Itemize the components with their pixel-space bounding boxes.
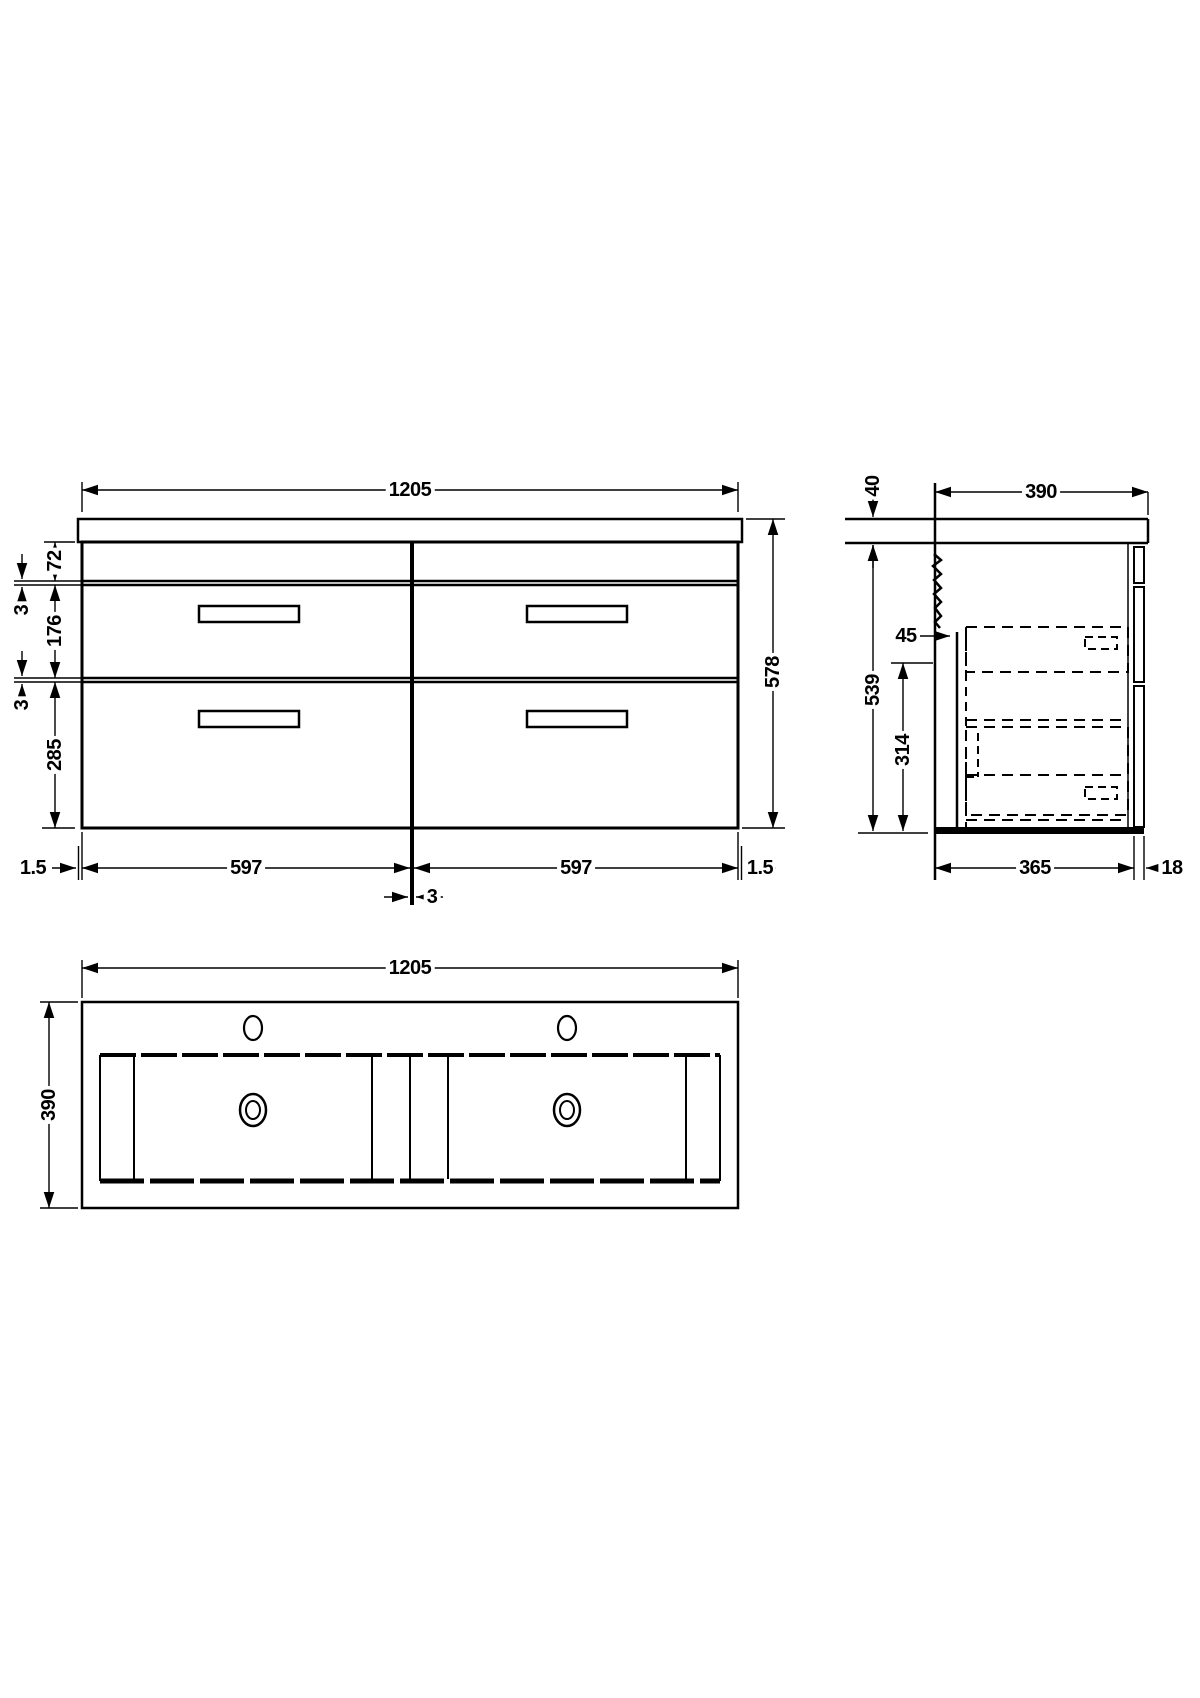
front-dimension-lines	[14, 482, 785, 897]
waste-hole-right	[554, 1094, 580, 1126]
dim-front-gap-lower: 3	[12, 697, 32, 714]
waste-hole-left-inner	[246, 1101, 260, 1119]
side-drawer-front	[1134, 686, 1144, 827]
dim-side-overall-depth: 390	[1022, 482, 1060, 502]
side-drawer-front	[1134, 587, 1144, 682]
dim-side-internal-height: 314	[893, 731, 913, 769]
front-view	[78, 519, 742, 905]
dim-front-middle-drawer-height: 176	[45, 612, 65, 650]
dim-front-width: 1205	[386, 480, 435, 500]
plan-view	[82, 1002, 738, 1208]
dim-plan-depth: 390	[39, 1086, 59, 1124]
dim-front-total-height: 578	[763, 653, 783, 691]
waste-hole-right-inner	[560, 1101, 574, 1119]
drawer-handle	[527, 606, 627, 622]
side-drawer-front	[1134, 547, 1144, 583]
tap-hole-right	[558, 1016, 576, 1040]
dim-plan-width: 1205	[386, 958, 435, 978]
tap-hole-left	[244, 1016, 262, 1040]
side-handle-profile	[1085, 787, 1117, 799]
plan-dimension-lines	[40, 960, 738, 1208]
front-worktop	[78, 519, 742, 542]
side-bottom-panel	[935, 827, 1144, 834]
dim-side-front-thickness: 18	[1158, 858, 1185, 878]
drawer-handle	[199, 711, 299, 727]
side-dimension-lines	[858, 492, 1156, 880]
dim-side-carcass-height: 539	[863, 671, 883, 709]
dim-front-bottom-drawer-height: 285	[45, 736, 65, 774]
side-handle-profile	[1085, 637, 1117, 649]
drawer-handle	[527, 711, 627, 727]
dim-front-overhang-left: 1.5	[17, 858, 49, 878]
dim-side-back-clearance: 45	[892, 626, 919, 646]
dim-front-top-drawer-height: 72	[45, 547, 65, 574]
dim-side-carcass-depth: 365	[1016, 858, 1054, 878]
side-drawer-box-lower	[966, 727, 1128, 815]
dim-side-worktop-thickness: 40	[863, 472, 883, 499]
drawing-linework	[0, 0, 1200, 1698]
technical-drawing-canvas: 1205 72 3 176 3 285 578 1.5 597 597 1.5 …	[0, 0, 1200, 1698]
waste-hole-left	[240, 1094, 266, 1126]
dim-front-drawer-width-left: 597	[227, 858, 265, 878]
drawer-handle	[199, 606, 299, 622]
dim-front-gap-upper: 3	[12, 602, 32, 619]
dim-front-drawer-width-right: 597	[557, 858, 595, 878]
side-view	[845, 483, 1148, 880]
dim-front-divider-thickness: 3	[424, 887, 441, 907]
dim-front-overhang-right: 1.5	[744, 858, 776, 878]
